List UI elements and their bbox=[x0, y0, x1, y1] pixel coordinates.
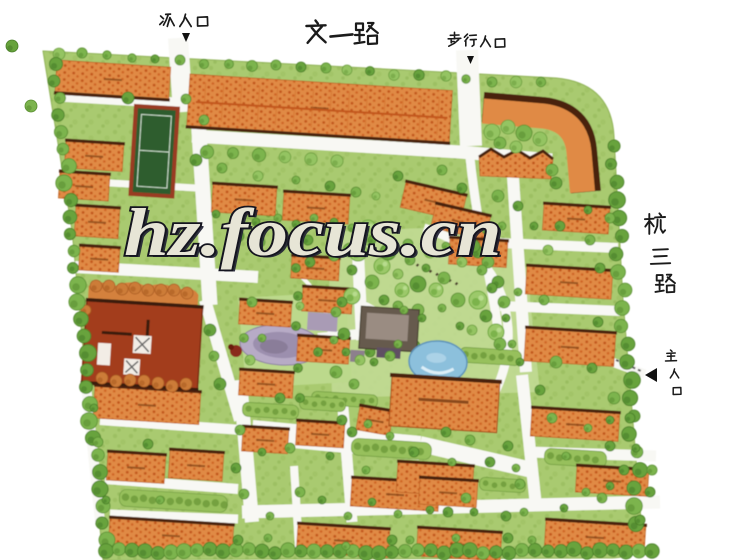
svg-text:hz.focus.cn: hz.focus.cn bbox=[124, 195, 502, 271]
